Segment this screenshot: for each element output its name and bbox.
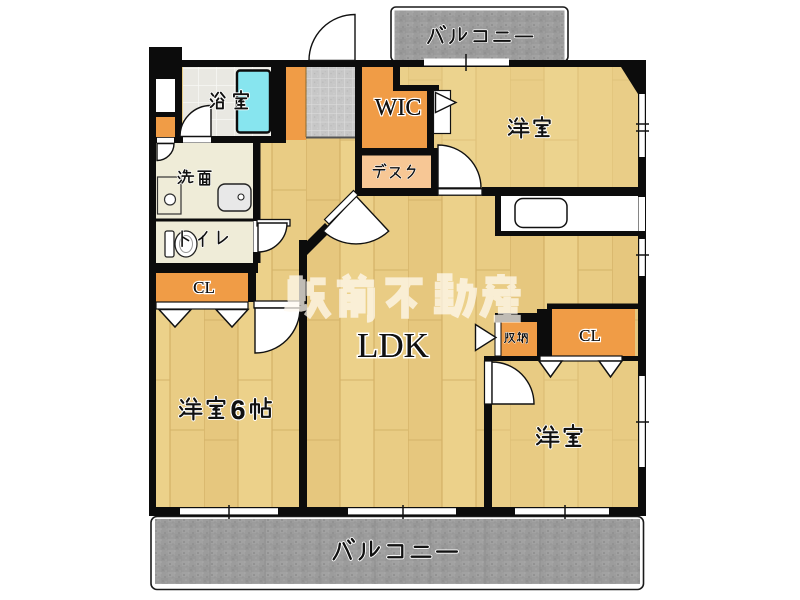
svg-text:LDK: LDK [357,326,429,365]
svg-text:6: 6 [230,395,245,425]
svg-text:WIC: WIC [375,95,422,121]
svg-text:CL: CL [193,278,215,297]
svg-text:CL: CL [579,326,601,345]
